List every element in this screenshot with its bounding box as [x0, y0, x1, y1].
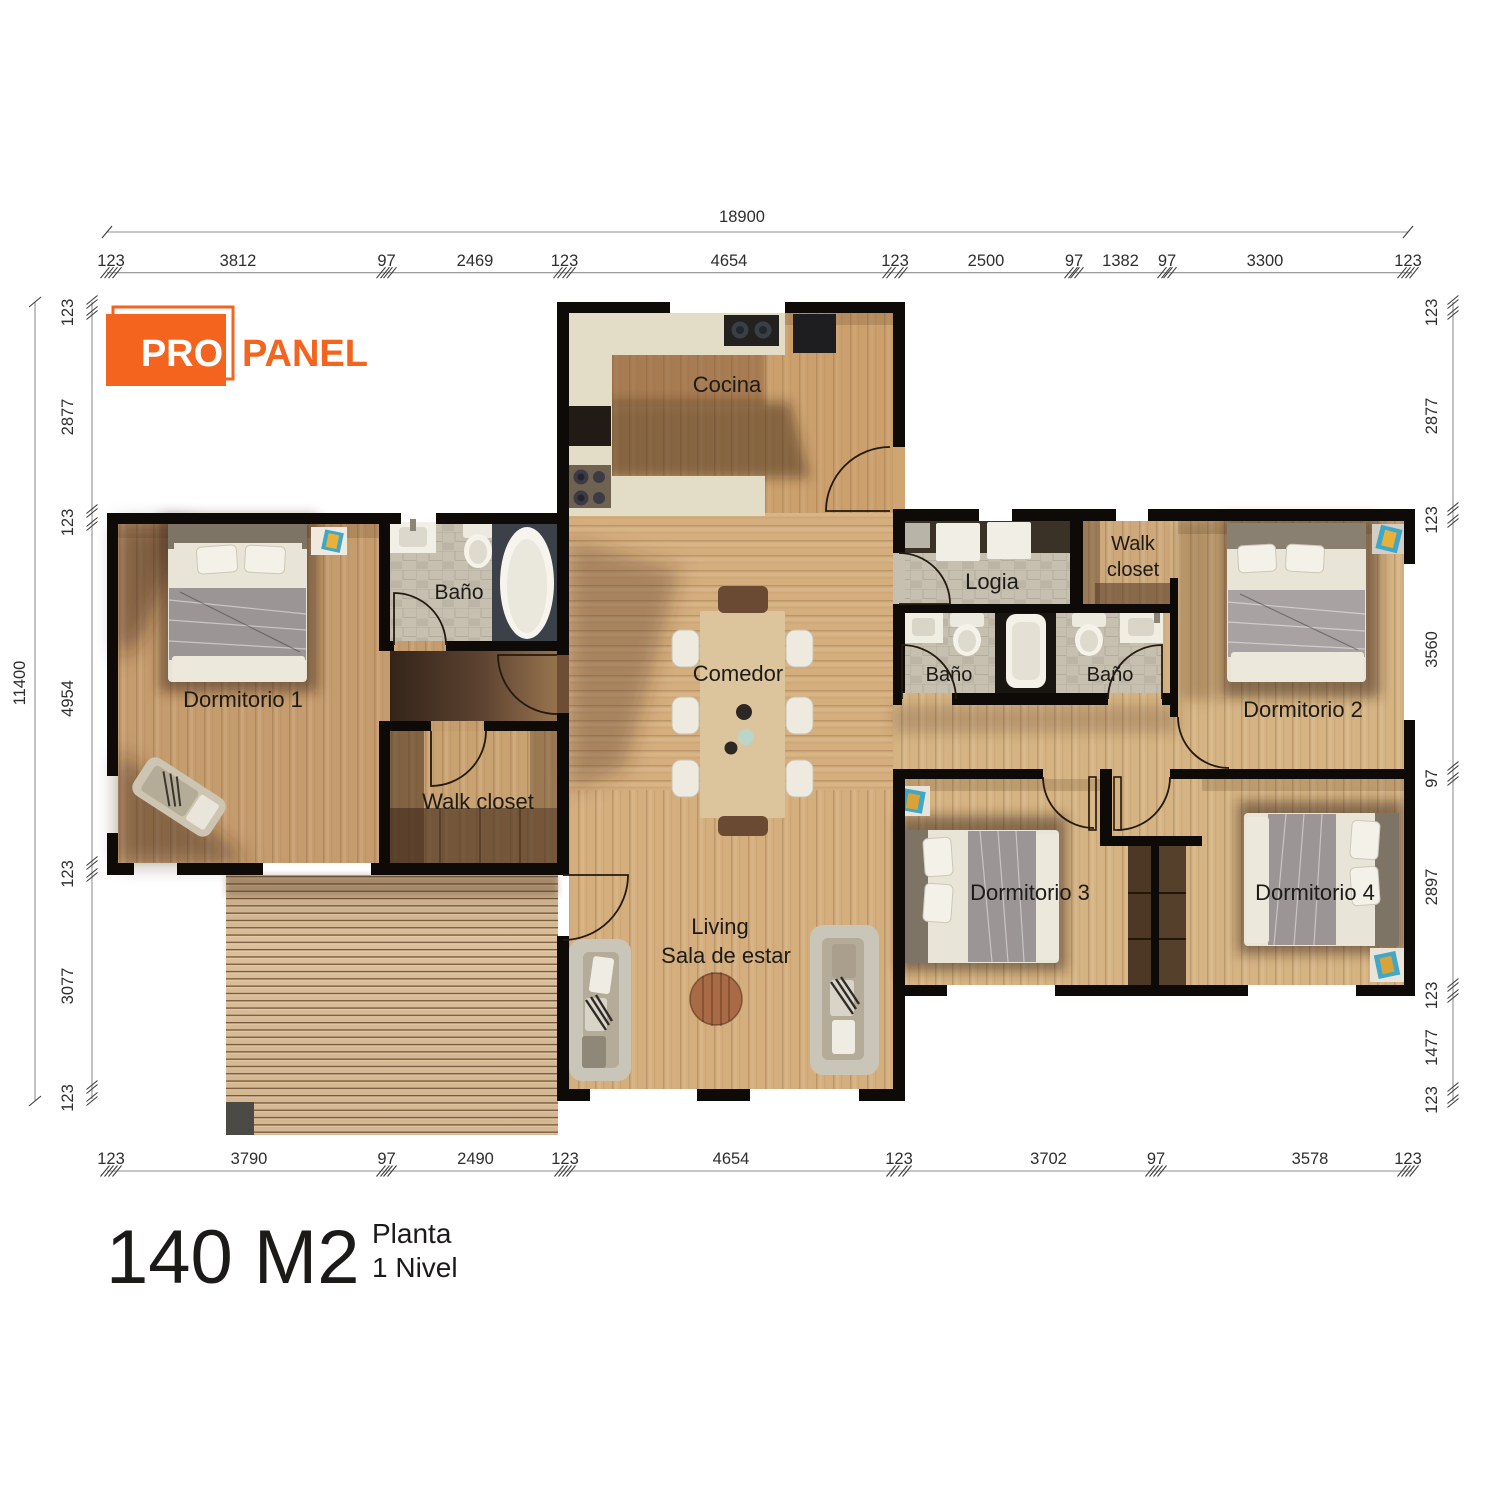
svg-text:1382: 1382: [1102, 252, 1139, 270]
svg-text:4654: 4654: [711, 252, 748, 270]
svg-text:123: 123: [885, 1150, 913, 1168]
svg-text:123: 123: [1394, 1150, 1422, 1168]
svg-text:123: 123: [97, 252, 125, 270]
svg-text:Living: Living: [691, 914, 748, 939]
svg-text:Dormitorio 1: Dormitorio 1: [183, 687, 303, 712]
svg-text:1 Nivel: 1 Nivel: [372, 1252, 458, 1283]
svg-text:3077: 3077: [59, 968, 77, 1005]
svg-text:123: 123: [1423, 982, 1441, 1010]
svg-text:97: 97: [1158, 252, 1176, 270]
svg-text:3560: 3560: [1423, 631, 1441, 668]
svg-text:123: 123: [59, 860, 77, 888]
svg-text:Dormitorio 3: Dormitorio 3: [970, 880, 1090, 905]
svg-text:Dormitorio 2: Dormitorio 2: [1243, 697, 1363, 722]
svg-text:3790: 3790: [231, 1150, 268, 1168]
svg-text:3578: 3578: [1292, 1150, 1329, 1168]
svg-text:123: 123: [1423, 299, 1441, 327]
svg-text:Planta: Planta: [372, 1218, 452, 1249]
svg-text:123: 123: [881, 252, 909, 270]
svg-text:Baño: Baño: [926, 664, 973, 686]
svg-text:97: 97: [1147, 1150, 1165, 1168]
svg-text:Baño: Baño: [1087, 664, 1134, 686]
svg-text:Walk closet: Walk closet: [422, 789, 534, 814]
svg-text:97: 97: [1065, 252, 1083, 270]
svg-text:123: 123: [551, 252, 579, 270]
svg-text:123: 123: [59, 1084, 77, 1112]
svg-text:11400: 11400: [11, 661, 29, 706]
svg-text:Comedor: Comedor: [693, 661, 783, 686]
svg-text:PANEL: PANEL: [242, 333, 368, 375]
svg-text:140 M2: 140 M2: [106, 1215, 360, 1300]
svg-text:closet: closet: [1107, 559, 1160, 581]
svg-text:Cocina: Cocina: [693, 372, 762, 397]
svg-text:4954: 4954: [59, 680, 77, 717]
svg-text:3702: 3702: [1030, 1150, 1067, 1168]
svg-text:123: 123: [1423, 506, 1441, 534]
svg-text:123: 123: [1394, 252, 1422, 270]
svg-text:123: 123: [59, 299, 77, 327]
svg-text:1477: 1477: [1423, 1029, 1441, 1066]
svg-text:2469: 2469: [457, 252, 494, 270]
svg-text:18900: 18900: [719, 208, 765, 226]
svg-text:97: 97: [377, 252, 395, 270]
svg-text:123: 123: [59, 509, 77, 537]
svg-text:123: 123: [1423, 1086, 1441, 1114]
svg-text:Sala de estar: Sala de estar: [661, 943, 791, 968]
svg-text:Walk: Walk: [1111, 533, 1156, 555]
svg-text:2490: 2490: [457, 1150, 494, 1168]
svg-text:3300: 3300: [1247, 252, 1284, 270]
svg-text:2500: 2500: [968, 252, 1005, 270]
svg-text:123: 123: [97, 1150, 125, 1168]
svg-text:2877: 2877: [1423, 398, 1441, 435]
svg-text:Dormitorio 4: Dormitorio 4: [1255, 880, 1375, 905]
svg-text:3812: 3812: [220, 252, 257, 270]
svg-text:97: 97: [377, 1150, 395, 1168]
svg-text:4654: 4654: [713, 1150, 750, 1168]
svg-text:97: 97: [1423, 769, 1441, 787]
svg-text:Baño: Baño: [434, 581, 483, 604]
svg-text:2877: 2877: [59, 399, 77, 436]
svg-text:PRO: PRO: [141, 333, 223, 375]
svg-text:Logia: Logia: [965, 569, 1020, 594]
svg-text:2897: 2897: [1423, 869, 1441, 906]
svg-text:123: 123: [551, 1150, 579, 1168]
